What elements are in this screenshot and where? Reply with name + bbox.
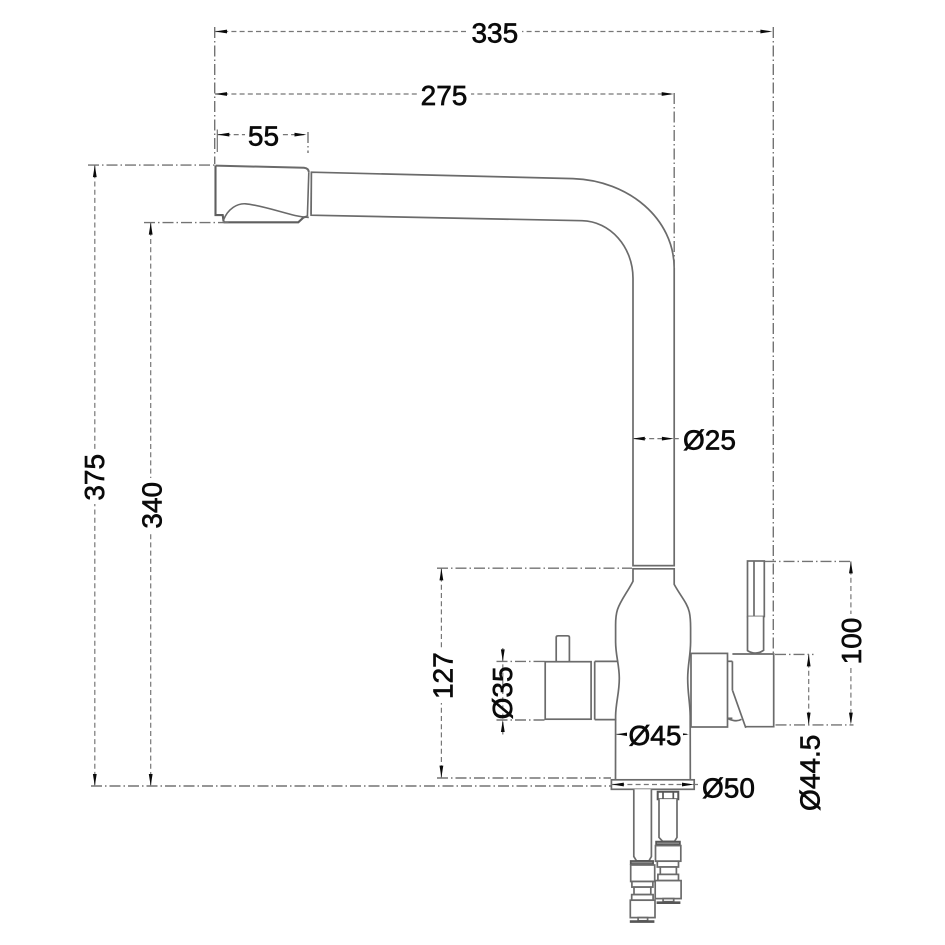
svg-text:375: 375 [79, 454, 110, 501]
svg-text:Ø25: Ø25 [683, 424, 736, 455]
svg-text:127: 127 [428, 652, 459, 699]
svg-text:Ø50: Ø50 [702, 773, 755, 804]
svg-text:275: 275 [421, 80, 468, 111]
svg-text:Ø45: Ø45 [629, 720, 682, 751]
svg-text:100: 100 [836, 618, 867, 665]
svg-text:Ø35: Ø35 [487, 666, 518, 719]
svg-text:340: 340 [137, 482, 168, 529]
svg-text:Ø44.5: Ø44.5 [795, 735, 826, 811]
svg-text:55: 55 [248, 120, 279, 151]
svg-text:335: 335 [471, 17, 518, 48]
